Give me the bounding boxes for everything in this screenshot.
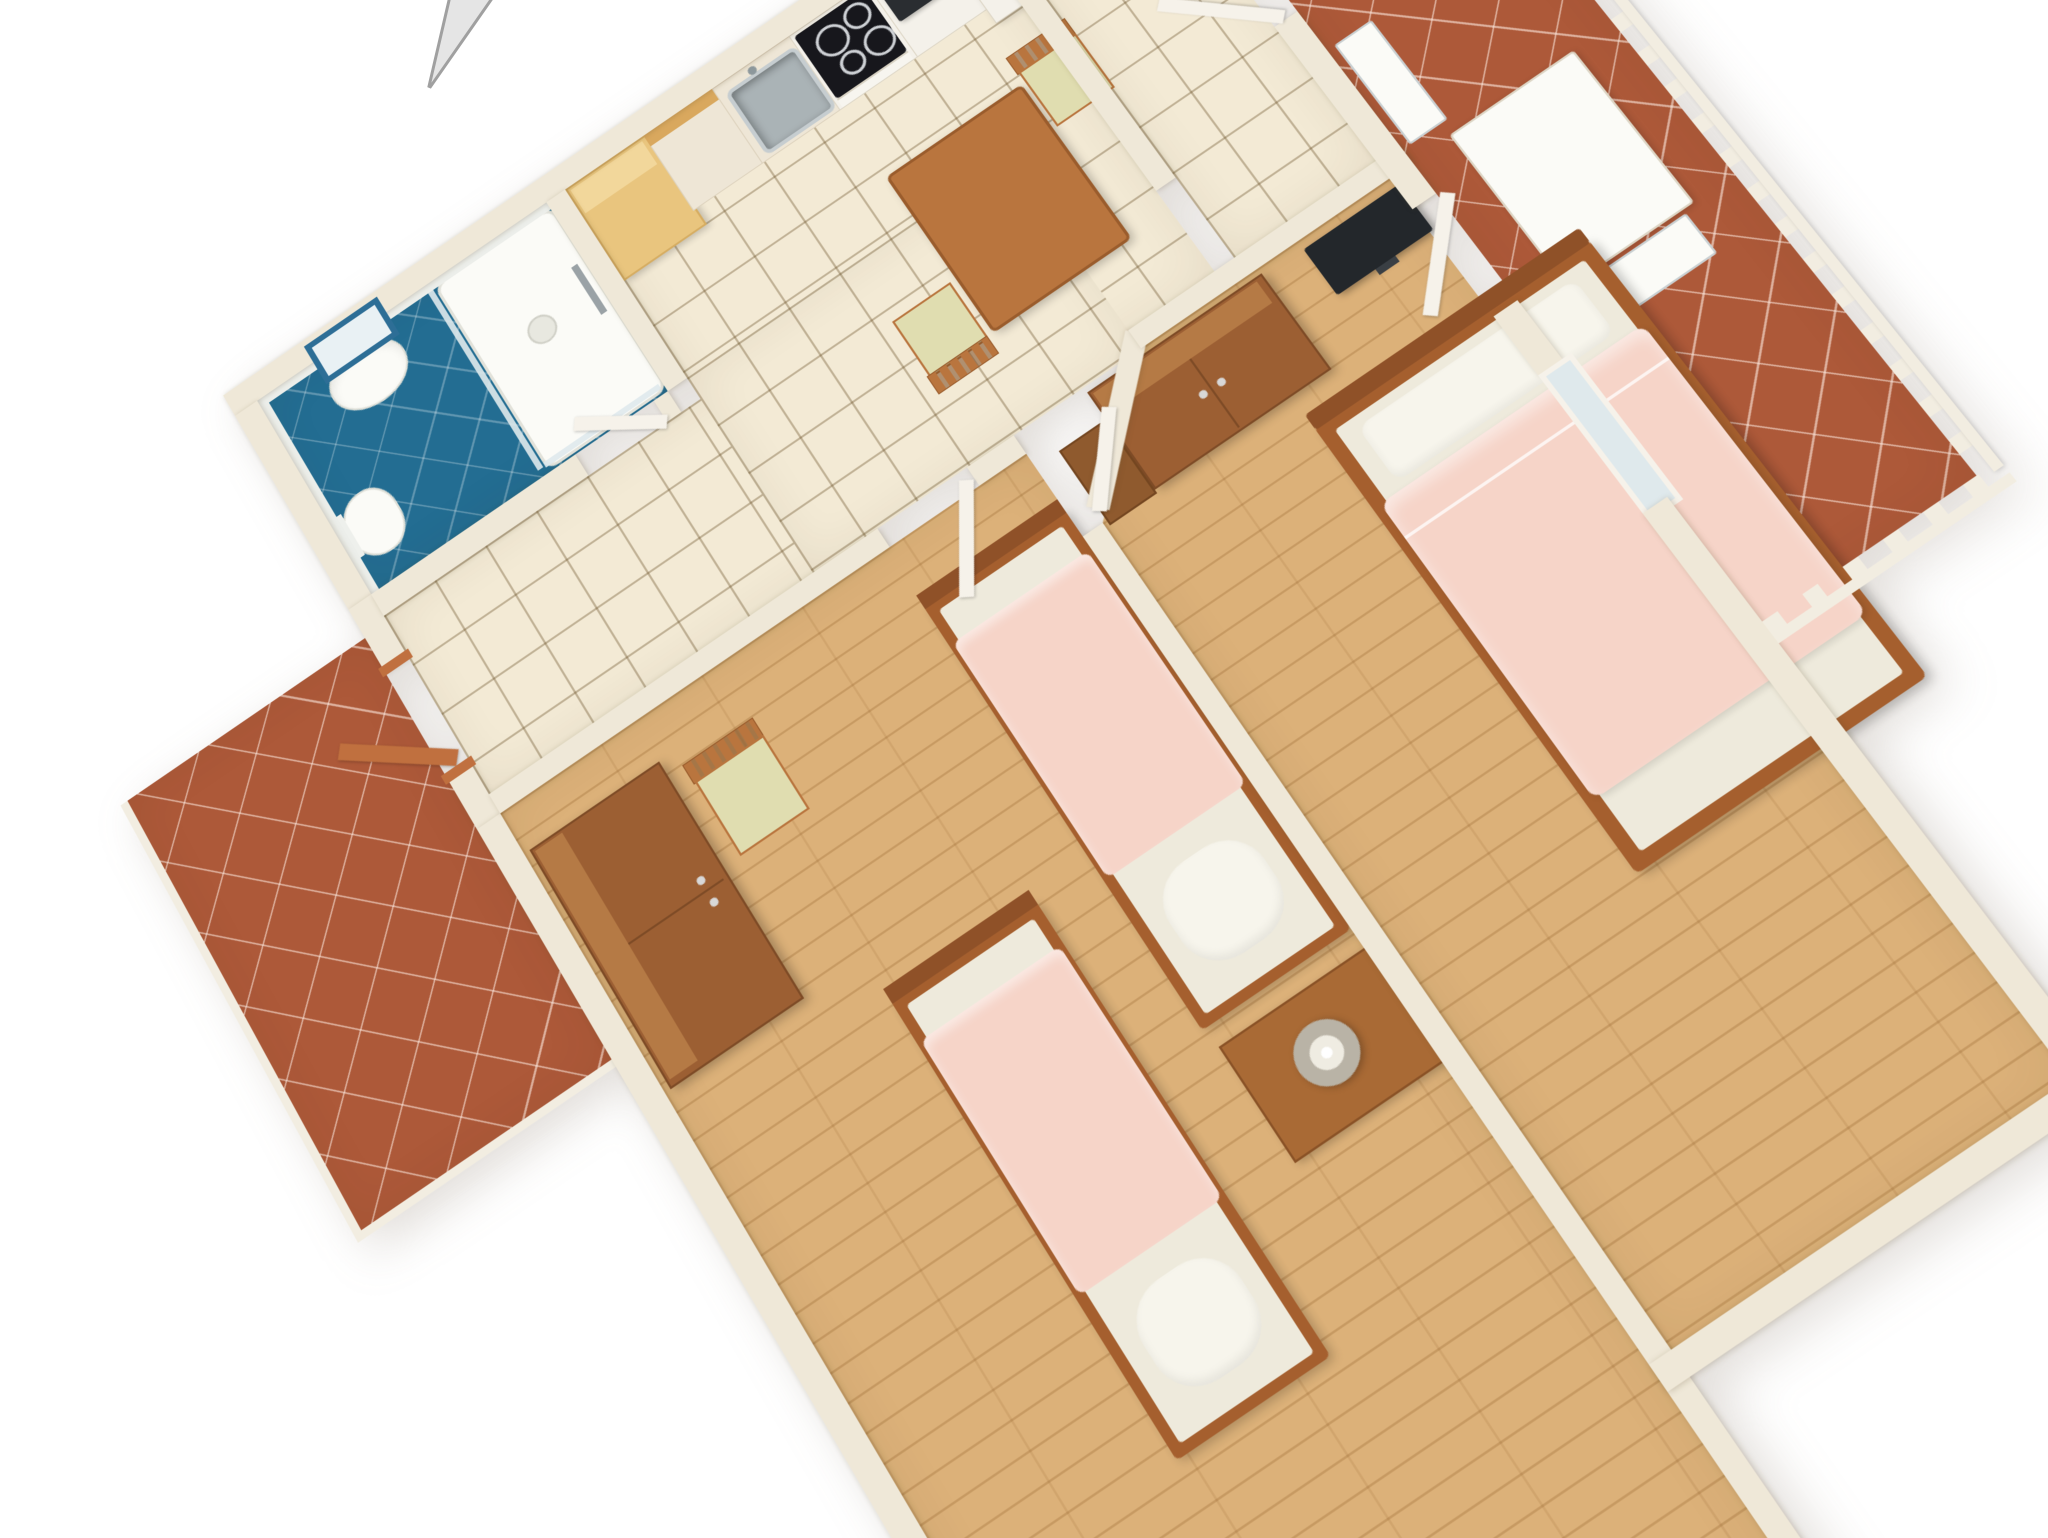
bathroom-door [574, 415, 668, 431]
floorplan-render [0, 0, 2048, 1538]
bedroom-twin-door [959, 479, 974, 597]
apartment-plan [0, 0, 2048, 1538]
